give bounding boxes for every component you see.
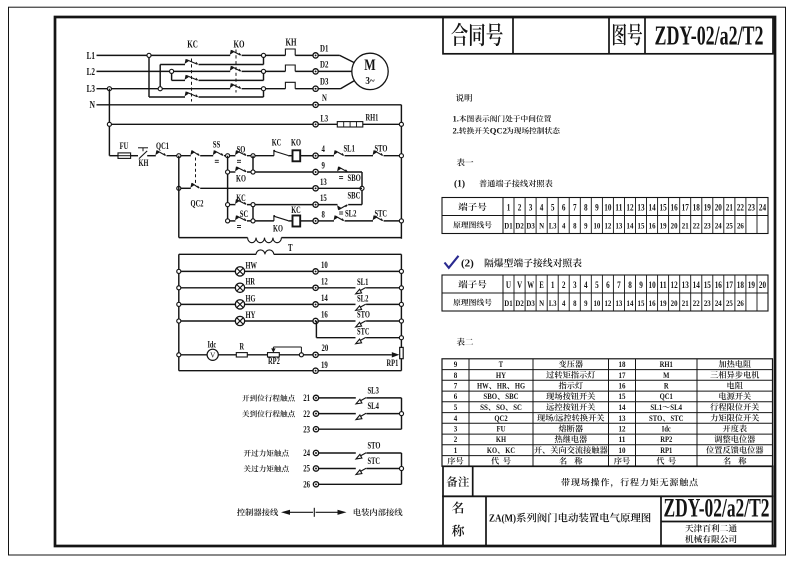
svg-text:21: 21 <box>726 202 734 212</box>
svg-text:HW: HW <box>246 260 257 270</box>
svg-text:23: 23 <box>748 202 756 212</box>
svg-text:KC: KC <box>291 205 301 215</box>
svg-text:Idc: Idc <box>208 340 217 350</box>
svg-text:12: 12 <box>619 424 626 434</box>
svg-text:21: 21 <box>682 220 689 230</box>
svg-text:SL4: SL4 <box>368 401 380 411</box>
svg-text:8: 8 <box>454 370 458 380</box>
svg-text:E: E <box>539 280 543 290</box>
svg-text:10: 10 <box>593 298 600 308</box>
svg-text:SS: SS <box>480 402 488 412</box>
svg-text:13: 13 <box>637 202 645 212</box>
svg-text:23: 23 <box>704 298 711 308</box>
svg-text:QC1: QC1 <box>156 141 169 151</box>
svg-text:T: T <box>499 359 503 369</box>
svg-text:STO: STO <box>649 413 662 423</box>
svg-text:N: N <box>322 93 327 103</box>
svg-text:7: 7 <box>454 381 458 391</box>
svg-text:QC2: QC2 <box>494 413 508 423</box>
svg-text:SO: SO <box>237 144 246 154</box>
svg-text:L3: L3 <box>549 220 557 230</box>
svg-text:KO: KO <box>273 224 283 234</box>
svg-text:SBO: SBO <box>483 391 497 401</box>
svg-text:4: 4 <box>540 202 544 212</box>
svg-text:12: 12 <box>604 298 611 308</box>
svg-text:16: 16 <box>671 202 679 212</box>
svg-text:RP1: RP1 <box>387 358 399 368</box>
svg-text:2: 2 <box>562 280 566 290</box>
svg-text:20: 20 <box>759 280 767 290</box>
svg-text:SC: SC <box>240 209 248 219</box>
svg-text:13: 13 <box>320 177 327 187</box>
svg-text:HY: HY <box>246 310 256 320</box>
svg-text:QC2: QC2 <box>191 199 204 209</box>
svg-text:L3: L3 <box>321 113 329 123</box>
svg-text:SL2: SL2 <box>357 294 369 304</box>
svg-text:9: 9 <box>595 202 599 212</box>
svg-text:12: 12 <box>321 276 328 286</box>
svg-text:14: 14 <box>693 280 701 290</box>
svg-text:ZDY-02/a2/T2: ZDY-02/a2/T2 <box>655 20 764 51</box>
svg-text:M: M <box>364 57 375 74</box>
svg-text:RH1: RH1 <box>660 359 673 369</box>
svg-text:26: 26 <box>303 480 310 490</box>
svg-text:19: 19 <box>704 202 712 212</box>
svg-text:20: 20 <box>671 220 678 230</box>
svg-text:6: 6 <box>454 391 458 401</box>
svg-text:SS: SS <box>213 139 221 149</box>
svg-text:(2): (2) <box>461 258 474 270</box>
svg-text:24: 24 <box>715 220 722 230</box>
svg-text:8: 8 <box>573 220 577 230</box>
svg-text:7: 7 <box>573 202 577 212</box>
svg-text:6: 6 <box>562 202 566 212</box>
svg-text:5: 5 <box>595 280 599 290</box>
svg-text:14: 14 <box>321 293 328 303</box>
svg-text:RH1: RH1 <box>366 112 379 122</box>
svg-text:15: 15 <box>638 220 645 230</box>
svg-text:SL1: SL1 <box>344 143 356 153</box>
svg-text:23: 23 <box>303 424 310 434</box>
svg-text:4: 4 <box>562 298 566 308</box>
svg-text:22: 22 <box>693 298 700 308</box>
svg-text:ZA(M): ZA(M) <box>489 513 516 525</box>
svg-text:HW: HW <box>477 381 489 391</box>
svg-text:8: 8 <box>584 202 588 212</box>
svg-text:9: 9 <box>584 220 587 230</box>
svg-text:FU: FU <box>120 141 129 151</box>
svg-text:D2: D2 <box>515 220 523 230</box>
svg-text:STO: STO <box>368 441 381 451</box>
svg-text:22: 22 <box>737 202 745 212</box>
svg-text:15: 15 <box>704 280 712 290</box>
svg-text:SL4: SL4 <box>670 402 682 412</box>
svg-text:QC1: QC1 <box>660 391 673 401</box>
svg-text:19: 19 <box>321 360 328 370</box>
svg-text:13: 13 <box>682 280 690 290</box>
svg-text:SL1: SL1 <box>357 277 369 287</box>
svg-text:KC: KC <box>236 193 246 203</box>
svg-text:KC: KC <box>272 137 282 147</box>
svg-text:KC: KC <box>505 445 515 455</box>
svg-text:D1: D1 <box>504 220 512 230</box>
svg-text:1: 1 <box>507 202 511 212</box>
svg-text:N: N <box>539 298 545 308</box>
svg-text:10: 10 <box>649 280 657 290</box>
svg-text:18: 18 <box>693 202 701 212</box>
svg-text:15: 15 <box>660 202 668 212</box>
svg-text:D1: D1 <box>504 298 512 308</box>
svg-text:V: V <box>517 280 523 290</box>
svg-text:KH: KH <box>139 158 149 168</box>
svg-text:Idc: Idc <box>662 424 671 434</box>
svg-text:15: 15 <box>320 193 327 203</box>
svg-text:4: 4 <box>454 413 458 423</box>
svg-text:9: 9 <box>322 161 326 171</box>
svg-text:HR: HR <box>497 381 507 391</box>
svg-text:24: 24 <box>759 202 767 212</box>
svg-text:12: 12 <box>604 220 611 230</box>
svg-text:17: 17 <box>726 280 734 290</box>
svg-text:3~: 3~ <box>365 75 374 87</box>
svg-text:4: 4 <box>562 220 566 230</box>
svg-text:U: U <box>506 280 512 290</box>
svg-text:STC: STC <box>357 326 370 336</box>
svg-text:13: 13 <box>615 298 622 308</box>
svg-text:10: 10 <box>604 202 612 212</box>
svg-text:SBC: SBC <box>505 391 518 401</box>
svg-text:KO: KO <box>234 40 245 51</box>
svg-text:23: 23 <box>704 220 711 230</box>
svg-text:11: 11 <box>615 202 623 212</box>
svg-text:SC: SC <box>513 402 522 412</box>
svg-text:8: 8 <box>573 298 577 308</box>
svg-text:SL1: SL1 <box>650 402 662 412</box>
svg-text:(1): (1) <box>454 179 465 190</box>
svg-text:20: 20 <box>715 202 723 212</box>
svg-text:16: 16 <box>649 220 656 230</box>
svg-text:L1: L1 <box>87 51 95 62</box>
svg-text:25: 25 <box>726 220 733 230</box>
svg-text:19: 19 <box>748 280 756 290</box>
svg-text:KH: KH <box>286 38 297 49</box>
svg-text:16: 16 <box>619 381 626 391</box>
svg-text:HG: HG <box>246 293 256 303</box>
svg-text:L3: L3 <box>87 84 95 95</box>
svg-text:18: 18 <box>737 280 745 290</box>
svg-text:25: 25 <box>303 464 310 474</box>
svg-text:M: M <box>663 370 670 380</box>
svg-text:2: 2 <box>454 434 458 444</box>
svg-text:24: 24 <box>715 298 722 308</box>
svg-text:R: R <box>240 342 245 352</box>
svg-text:9: 9 <box>454 359 458 369</box>
svg-text:22: 22 <box>693 220 700 230</box>
svg-text:14: 14 <box>649 202 657 212</box>
svg-text:SBO: SBO <box>348 173 361 183</box>
svg-text:RP2: RP2 <box>268 356 280 366</box>
svg-text:N: N <box>539 220 545 230</box>
svg-text:21: 21 <box>303 393 310 403</box>
svg-text:1.: 1. <box>453 114 459 124</box>
svg-text:D2: D2 <box>515 298 523 308</box>
svg-text:HG: HG <box>515 381 525 391</box>
svg-text:16: 16 <box>321 310 328 320</box>
svg-text:19: 19 <box>660 298 667 308</box>
svg-text:RP1: RP1 <box>660 445 672 455</box>
svg-text:11: 11 <box>660 280 668 290</box>
svg-text:2: 2 <box>518 202 522 212</box>
svg-text:4: 4 <box>584 280 588 290</box>
svg-text:N: N <box>90 100 96 111</box>
svg-text:3: 3 <box>529 202 533 212</box>
svg-text:QC2: QC2 <box>490 126 507 136</box>
svg-text:3: 3 <box>454 424 458 434</box>
svg-text:20: 20 <box>671 298 678 308</box>
svg-text:1: 1 <box>454 445 458 455</box>
svg-text:21: 21 <box>682 298 689 308</box>
svg-text:19: 19 <box>660 220 667 230</box>
svg-text:STO: STO <box>357 310 370 320</box>
svg-text:R: R <box>664 381 669 391</box>
svg-text:W: W <box>527 280 534 290</box>
svg-text:5: 5 <box>551 202 555 212</box>
svg-text:KC: KC <box>187 40 198 51</box>
svg-text:14: 14 <box>627 220 634 230</box>
svg-text:22: 22 <box>303 409 310 419</box>
svg-text:12: 12 <box>626 202 634 212</box>
svg-text:T: T <box>288 243 293 254</box>
svg-text:RP2: RP2 <box>660 434 673 444</box>
svg-text:14: 14 <box>627 298 634 308</box>
svg-text:5: 5 <box>454 402 458 412</box>
svg-text:20: 20 <box>322 343 329 353</box>
svg-text:4: 4 <box>322 144 326 154</box>
svg-text:16: 16 <box>649 298 656 308</box>
svg-text:15: 15 <box>638 298 645 308</box>
svg-text:9: 9 <box>584 298 587 308</box>
svg-text:3: 3 <box>573 280 577 290</box>
svg-text:24: 24 <box>303 448 310 458</box>
svg-text:/: / <box>553 413 556 423</box>
svg-text:D3: D3 <box>320 77 329 87</box>
svg-text:KO: KO <box>487 445 497 455</box>
svg-text:18: 18 <box>619 359 626 369</box>
svg-text:25: 25 <box>726 298 733 308</box>
svg-text:KH: KH <box>496 434 506 444</box>
svg-text:FU: FU <box>497 424 506 434</box>
svg-text:HY: HY <box>496 370 507 380</box>
svg-text:6: 6 <box>606 280 610 290</box>
svg-text:16: 16 <box>715 280 723 290</box>
svg-text:10: 10 <box>619 445 626 455</box>
svg-text:14: 14 <box>619 402 626 412</box>
svg-text:D3: D3 <box>526 220 534 230</box>
svg-text:STC: STC <box>671 413 684 423</box>
svg-text:ZDY-02/a2/T2: ZDY-02/a2/T2 <box>664 494 770 523</box>
svg-text:D3: D3 <box>526 298 534 308</box>
svg-text:12: 12 <box>671 280 679 290</box>
svg-text:15: 15 <box>619 391 626 401</box>
svg-text:D1: D1 <box>320 43 329 53</box>
svg-text:1: 1 <box>551 280 555 290</box>
svg-text:SBC: SBC <box>348 191 361 201</box>
svg-text:HR: HR <box>246 277 256 287</box>
svg-text:13: 13 <box>619 413 626 423</box>
svg-text:SL3: SL3 <box>368 385 380 395</box>
svg-text:9: 9 <box>639 280 643 290</box>
svg-text:26: 26 <box>737 298 744 308</box>
svg-text:KO: KO <box>236 174 246 184</box>
svg-text:STO: STO <box>375 143 388 153</box>
svg-text:13: 13 <box>615 220 622 230</box>
svg-text:10: 10 <box>593 220 600 230</box>
svg-text:7: 7 <box>617 280 621 290</box>
svg-text:10: 10 <box>321 260 328 270</box>
svg-text:KO: KO <box>291 137 301 147</box>
svg-text:17: 17 <box>682 202 690 212</box>
svg-text:D2: D2 <box>320 59 329 69</box>
svg-text:26: 26 <box>737 220 744 230</box>
svg-text:8: 8 <box>628 280 632 290</box>
svg-text:SO: SO <box>496 402 505 412</box>
svg-text:STC: STC <box>368 456 381 466</box>
svg-text:11: 11 <box>619 434 626 444</box>
svg-text:L2: L2 <box>87 67 95 78</box>
svg-text:SL2: SL2 <box>345 209 357 219</box>
svg-text:2.: 2. <box>453 126 459 136</box>
svg-text:8: 8 <box>322 209 326 219</box>
svg-text:V: V <box>210 352 216 360</box>
svg-text:L3: L3 <box>549 298 557 308</box>
svg-text:17: 17 <box>619 370 626 380</box>
svg-text:STC: STC <box>375 209 388 219</box>
